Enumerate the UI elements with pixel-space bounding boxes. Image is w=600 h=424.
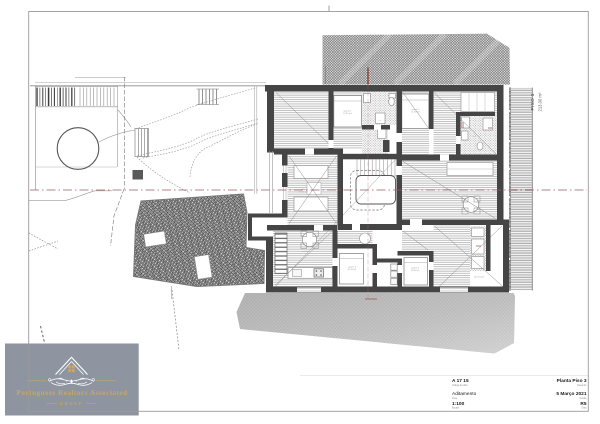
svg-text:5 Março 2021: 5 Março 2021 (556, 391, 586, 397)
svg-text:i.s.: i.s. (379, 120, 382, 122)
svg-text:quarto 2: quarto 2 (412, 108, 420, 111)
svg-text:quarto 3: quarto 3 (348, 266, 356, 269)
svg-text:quarto 4: quarto 4 (411, 267, 419, 270)
svg-text:Versão: Versão (579, 397, 587, 400)
svg-text:Fase: Fase (452, 398, 458, 400)
svg-text:10.40 m2: 10.40 m2 (411, 270, 421, 272)
svg-text:12.30 m2: 12.30 m2 (343, 113, 353, 115)
svg-text:10.10 m2: 10.10 m2 (348, 269, 358, 271)
svg-text:PISO 3: PISO 3 (530, 93, 535, 110)
svg-text:Planta Piso 3: Planta Piso 3 (557, 378, 587, 384)
svg-text:1:100: 1:100 (452, 401, 465, 407)
svg-text:A 17 15: A 17 15 (452, 378, 469, 384)
svg-text:R5: R5 (580, 401, 586, 407)
svg-text:213.00 m²: 213.00 m² (538, 92, 543, 111)
svg-text:Aditamento: Aditamento (452, 391, 477, 397)
svg-text:kitchenette: kitchenette (474, 276, 485, 279)
svg-text:GROUP: GROUP (60, 401, 83, 406)
svg-text:24.10 m2: 24.10 m2 (299, 192, 309, 194)
svg-text:Portuguese Realtors Associated: Portuguese Realtors Associated (17, 389, 128, 397)
svg-text:Escala: Escala (452, 407, 460, 409)
svg-text:Desenho: Desenho (577, 385, 587, 387)
svg-text:11.90 m2: 11.90 m2 (411, 112, 420, 114)
svg-text:cozinha: cozinha (301, 251, 309, 253)
svg-text:quarto 1: quarto 1 (344, 110, 352, 113)
svg-text:Data: Data (582, 406, 588, 409)
svg-text:Código da obra: Código da obra (452, 384, 468, 387)
